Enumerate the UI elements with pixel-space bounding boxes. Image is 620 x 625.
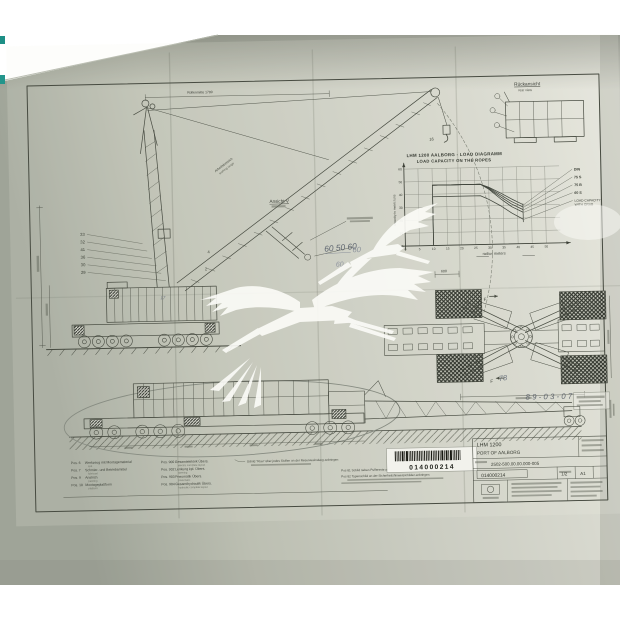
x-tick-label: 10 — [432, 247, 436, 251]
top-dimension-label: Rollenmitte 1700 — [187, 90, 213, 95]
pos-number: Pos. 10 — [71, 483, 83, 487]
legend-label: 60 S — [574, 191, 582, 195]
outrigger-pad — [561, 355, 608, 384]
y-tick-label: 60 — [398, 167, 402, 171]
chart-ylabel: capacity in metric tons — [392, 194, 397, 226]
section-label-f: F — [484, 297, 487, 302]
pos-description-en: hydraulic complete layout — [178, 485, 208, 490]
teal-mark-icon — [0, 75, 5, 84]
handwritten-stray-dim: 60 — [352, 245, 361, 254]
balloon-number: 33 — [80, 232, 85, 237]
barcode-bar — [417, 451, 418, 461]
x-tick-label: 45 — [530, 245, 534, 249]
x-tick-label: 30 — [488, 246, 492, 250]
pos-number: Pos. 6 — [71, 461, 81, 465]
y-tick-label: 50 — [399, 180, 403, 184]
pos-number: Pos. 900 — [161, 460, 175, 464]
x-tick-label: 35 — [502, 245, 506, 249]
balloon-number: 30 — [81, 262, 86, 267]
pos-number: Pos. 7 — [71, 468, 81, 472]
title-block-format: A1 — [580, 471, 586, 476]
barcode-number: 014000214 — [409, 464, 455, 472]
barcode-bar — [395, 451, 396, 461]
barcode-bar — [414, 451, 415, 461]
pos-number: Pos. 903 — [161, 475, 175, 479]
barcode-bar — [446, 450, 448, 460]
chart-xlabel: radius meters — [483, 252, 506, 256]
outrigger-pad — [435, 290, 482, 319]
outrigger-pad — [437, 354, 484, 383]
page-bottom-margin — [0, 585, 620, 620]
barcode-bar — [421, 451, 422, 461]
drawing-sheet: Rollenmitte 1700 Arbeitsbereich working … — [6, 34, 620, 527]
barcode-bar — [428, 451, 429, 461]
pos-number: Pos. 902 — [161, 467, 175, 471]
barcode-bar — [434, 451, 435, 461]
pencil-number: 17 — [160, 295, 166, 300]
pos-number: Pos. 9 — [71, 476, 81, 480]
balloon-number: 29 — [81, 270, 86, 275]
title-block-drawing-no: 2502-500.00.00.000-005 — [491, 461, 540, 467]
balloon-number: 36 — [81, 255, 86, 260]
plan-dimension-label: 600 — [441, 269, 447, 273]
x-tick-label: 50 — [545, 245, 549, 249]
title-block-model: LHM 1200 — [477, 442, 502, 449]
rear-view-title-de: Rückansicht — [514, 81, 541, 88]
barcode-bar — [406, 451, 408, 461]
handwritten-date: 89-03-07 — [526, 392, 575, 402]
balloon-number: 41 — [80, 247, 85, 252]
title-block-doc-no: 014000214 — [481, 473, 505, 480]
drawing-canvas: Rollenmitte 1700 Arbeitsbereich working … — [0, 0, 620, 620]
legend-label: DIN — [574, 167, 581, 171]
barcode-bar — [458, 450, 459, 460]
x-tick-label: 25 — [474, 246, 478, 250]
pos-number: Pos. 904 — [161, 482, 175, 486]
detail-view-title: Ansicht V — [269, 199, 289, 204]
barcode-bar — [398, 451, 399, 461]
teal-mark-icon — [0, 36, 5, 44]
x-tick-label: 5 — [419, 247, 421, 251]
legend-label: 75 B — [574, 183, 582, 187]
page-top-margin — [0, 0, 620, 35]
barcode-bar — [438, 450, 439, 460]
x-tick-label: 0 — [405, 247, 407, 251]
rear-view-title-en: rear view — [518, 88, 532, 92]
x-tick-label: 15 — [446, 247, 450, 251]
barcode-bar — [431, 451, 432, 461]
y-tick-label: 40 — [399, 193, 403, 197]
ink-stamp — [574, 392, 610, 410]
title-block-sheet: 1/2 — [561, 471, 568, 476]
barcode-bar — [441, 450, 443, 460]
x-tick-label: 40 — [516, 245, 520, 249]
barcode-bar — [450, 450, 452, 460]
barcode-bar — [424, 451, 425, 461]
section-label-f: F — [490, 379, 493, 384]
barcode-bar — [454, 450, 455, 460]
pos-description-en: platform — [88, 486, 97, 490]
photo-of-crane-technical-drawing: Rollenmitte 1700 Arbeitsbereich working … — [0, 0, 620, 620]
outrigger-pad — [559, 291, 606, 320]
barcode-bar — [402, 451, 404, 461]
barcode-bar — [410, 451, 411, 461]
y-tick-label: 30 — [399, 206, 403, 210]
title-block-project: PORT OF AALBORG — [477, 450, 521, 456]
barcode-label: 014000214 — [387, 447, 477, 473]
balloon-number: 32 — [80, 239, 85, 244]
legend-label: 75 S — [574, 175, 582, 179]
x-tick-label: 20 — [460, 246, 464, 250]
